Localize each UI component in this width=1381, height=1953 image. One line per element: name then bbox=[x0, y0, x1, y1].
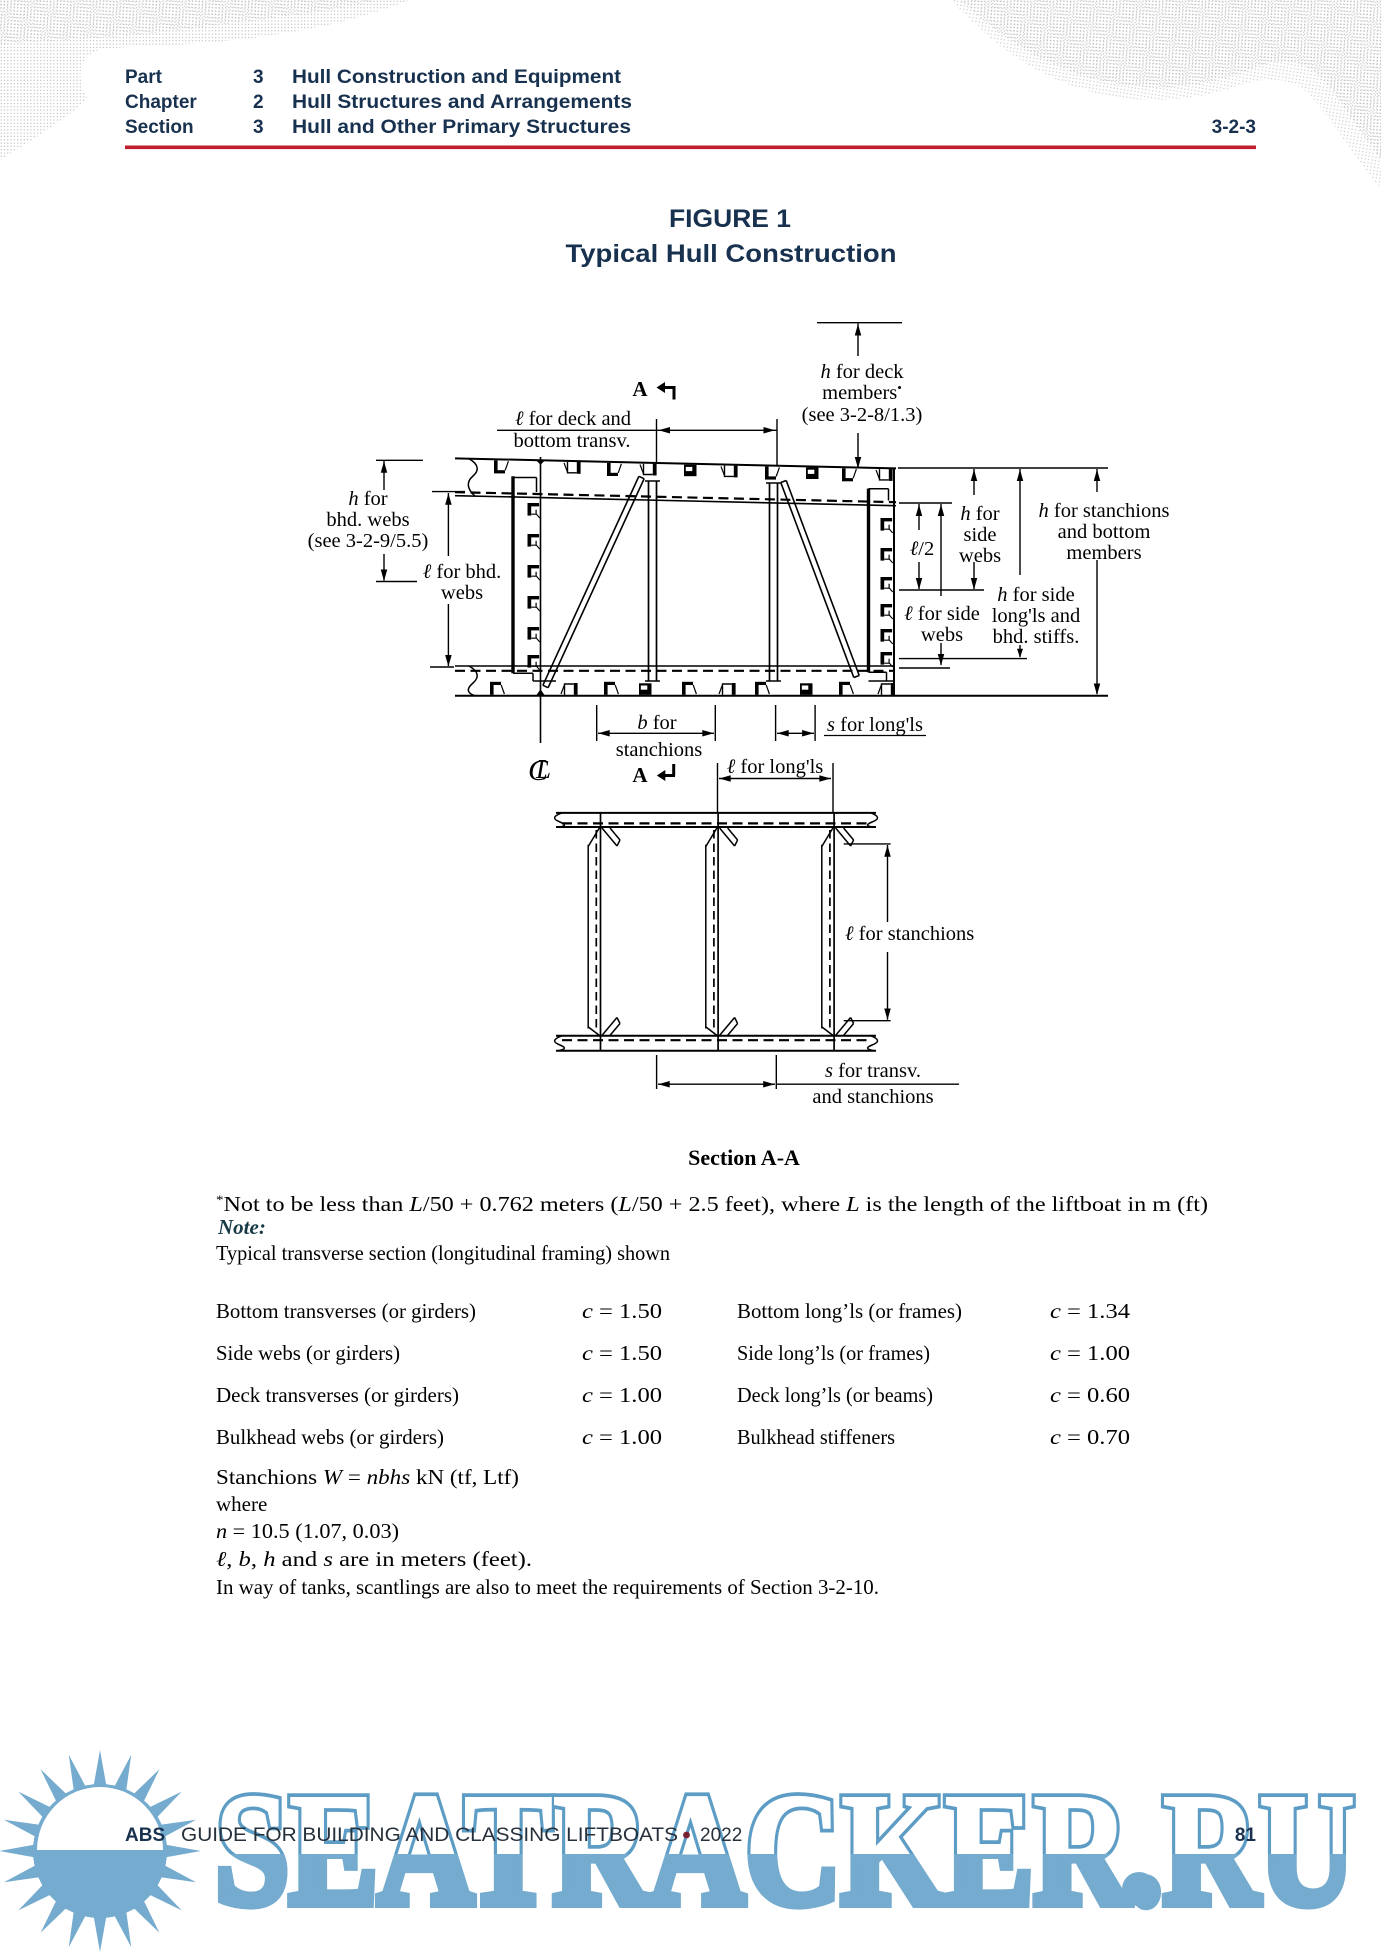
svg-text:FIGURE 1: FIGURE 1 bbox=[669, 205, 791, 233]
svg-text:ℓ for side: ℓ for side bbox=[904, 603, 980, 625]
svg-text:Deck long’ls (or beams): Deck long’ls (or beams) bbox=[737, 1383, 933, 1407]
svg-text:Hull Structures and Arrangemen: Hull Structures and Arrangements bbox=[292, 92, 632, 113]
svg-text:3: 3 bbox=[253, 67, 264, 88]
svg-text:Bottom transverses (or girders: Bottom transverses (or girders) bbox=[216, 1299, 476, 1323]
svg-text:Part: Part bbox=[125, 67, 163, 88]
svg-text:GUIDE FOR BUILDING AND CLASSIN: GUIDE FOR BUILDING AND CLASSING LIFTBOAT… bbox=[181, 1825, 678, 1846]
svg-text:c = 1.34: c = 1.34 bbox=[1050, 1299, 1131, 1323]
svg-text:Note:: Note: bbox=[217, 1215, 266, 1239]
svg-text:c = 1.50: c = 1.50 bbox=[582, 1299, 662, 1323]
svg-text:c = 0.70: c = 0.70 bbox=[1050, 1425, 1130, 1449]
svg-text:Typical Hull Construction: Typical Hull Construction bbox=[566, 240, 897, 268]
svg-text:c = 1.00: c = 1.00 bbox=[582, 1425, 662, 1449]
svg-text:2: 2 bbox=[253, 92, 264, 113]
svg-text:ℓ for bhd.: ℓ for bhd. bbox=[423, 561, 502, 583]
svg-text:Side webs (or girders): Side webs (or girders) bbox=[216, 1341, 400, 1365]
svg-text:3-2-3: 3-2-3 bbox=[1212, 117, 1256, 138]
svg-text:Deck transverses (or girders): Deck transverses (or girders) bbox=[216, 1383, 459, 1407]
svg-text:Chapter: Chapter bbox=[125, 92, 197, 113]
svg-text:2022: 2022 bbox=[700, 1825, 742, 1846]
svg-text:Bulkhead stiffeners: Bulkhead stiffeners bbox=[737, 1425, 895, 1449]
svg-text:and bottom: and bottom bbox=[1058, 521, 1151, 543]
svg-text:Side long’ls (or frames): Side long’ls (or frames) bbox=[737, 1341, 930, 1365]
svg-text:3: 3 bbox=[253, 117, 264, 138]
svg-text:members: members bbox=[1066, 542, 1141, 564]
svg-text:Bottom long’ls (or frames): Bottom long’ls (or frames) bbox=[737, 1299, 962, 1323]
svg-text:ℓ for long'ls: ℓ for long'ls bbox=[727, 756, 824, 778]
svg-text:where: where bbox=[216, 1492, 267, 1516]
svg-text:c = 0.60: c = 0.60 bbox=[1050, 1383, 1130, 1407]
svg-text:webs: webs bbox=[959, 545, 1001, 567]
svg-text:s for transv.: s for transv. bbox=[825, 1060, 921, 1082]
svg-text:h for: h for bbox=[960, 503, 999, 525]
svg-text:bhd. stiffs.: bhd. stiffs. bbox=[993, 626, 1080, 648]
svg-text:Hull Construction and Equipmen: Hull Construction and Equipment bbox=[292, 67, 622, 88]
svg-text:and stanchions: and stanchions bbox=[812, 1086, 933, 1108]
svg-text:ℓ, b, h and s are in meters (f: ℓ, b, h and s are in meters (feet). bbox=[216, 1547, 532, 1571]
svg-text:c = 1.00: c = 1.00 bbox=[582, 1383, 662, 1407]
svg-text:b for: b for bbox=[637, 712, 676, 734]
svg-text:*Not to be less than L/50 + 0.: *Not to be less than L/50 + 0.762 meters… bbox=[216, 1192, 1208, 1216]
svg-text:Hull and Other Primary Structu: Hull and Other Primary Structures bbox=[292, 117, 631, 138]
svg-text:(see 3-2-9/5.5): (see 3-2-9/5.5) bbox=[308, 530, 429, 552]
svg-text:Section A-A: Section A-A bbox=[688, 1145, 800, 1170]
svg-text:Stanchions W = nbhs kN (tf, Lt: Stanchions W = nbhs kN (tf, Ltf) bbox=[216, 1465, 519, 1489]
svg-text:s for long'ls: s for long'ls bbox=[827, 714, 923, 736]
svg-text:c = 1.50: c = 1.50 bbox=[582, 1341, 662, 1365]
svg-text:stanchions: stanchions bbox=[616, 739, 703, 761]
svg-text:Section: Section bbox=[125, 117, 194, 138]
svg-text:ABS: ABS bbox=[125, 1825, 165, 1846]
svg-text:Typical transverse section (lo: Typical transverse section (longitudinal… bbox=[216, 1241, 670, 1265]
svg-text:A: A bbox=[632, 377, 648, 401]
svg-text:ℓ/2: ℓ/2 bbox=[910, 538, 935, 560]
svg-text:Bulkhead webs (or girders): Bulkhead webs (or girders) bbox=[216, 1425, 444, 1449]
svg-text:long'ls and: long'ls and bbox=[992, 605, 1081, 627]
svg-text:members•: members• bbox=[822, 380, 902, 404]
svg-text:In way of tanks, scantlings ar: In way of tanks, scantlings are also to … bbox=[216, 1575, 879, 1599]
svg-text:ℓ for deck and: ℓ for deck and bbox=[515, 408, 631, 430]
svg-text:ℓ for stanchions: ℓ for stanchions bbox=[845, 923, 974, 945]
svg-text:bottom transv.: bottom transv. bbox=[513, 430, 630, 452]
svg-text:webs: webs bbox=[921, 624, 963, 646]
svg-text:side: side bbox=[963, 524, 996, 546]
svg-text:81: 81 bbox=[1235, 1825, 1257, 1846]
svg-text:bhd. webs: bhd. webs bbox=[326, 509, 409, 531]
svg-text:n = 10.5 (1.07, 0.03): n = 10.5 (1.07, 0.03) bbox=[216, 1519, 399, 1543]
svg-text:h for stanchions: h for stanchions bbox=[1039, 500, 1170, 522]
svg-text:webs: webs bbox=[441, 582, 483, 604]
svg-text:h for side: h for side bbox=[997, 584, 1074, 606]
svg-text:c = 1.00: c = 1.00 bbox=[1050, 1341, 1130, 1365]
svg-text:h for: h for bbox=[348, 488, 387, 510]
svg-text:A: A bbox=[632, 763, 648, 787]
svg-text:L: L bbox=[535, 754, 551, 784]
svg-text:(see 3-2-8/1.3): (see 3-2-8/1.3) bbox=[802, 404, 923, 426]
svg-text:h for deck: h for deck bbox=[820, 361, 904, 383]
